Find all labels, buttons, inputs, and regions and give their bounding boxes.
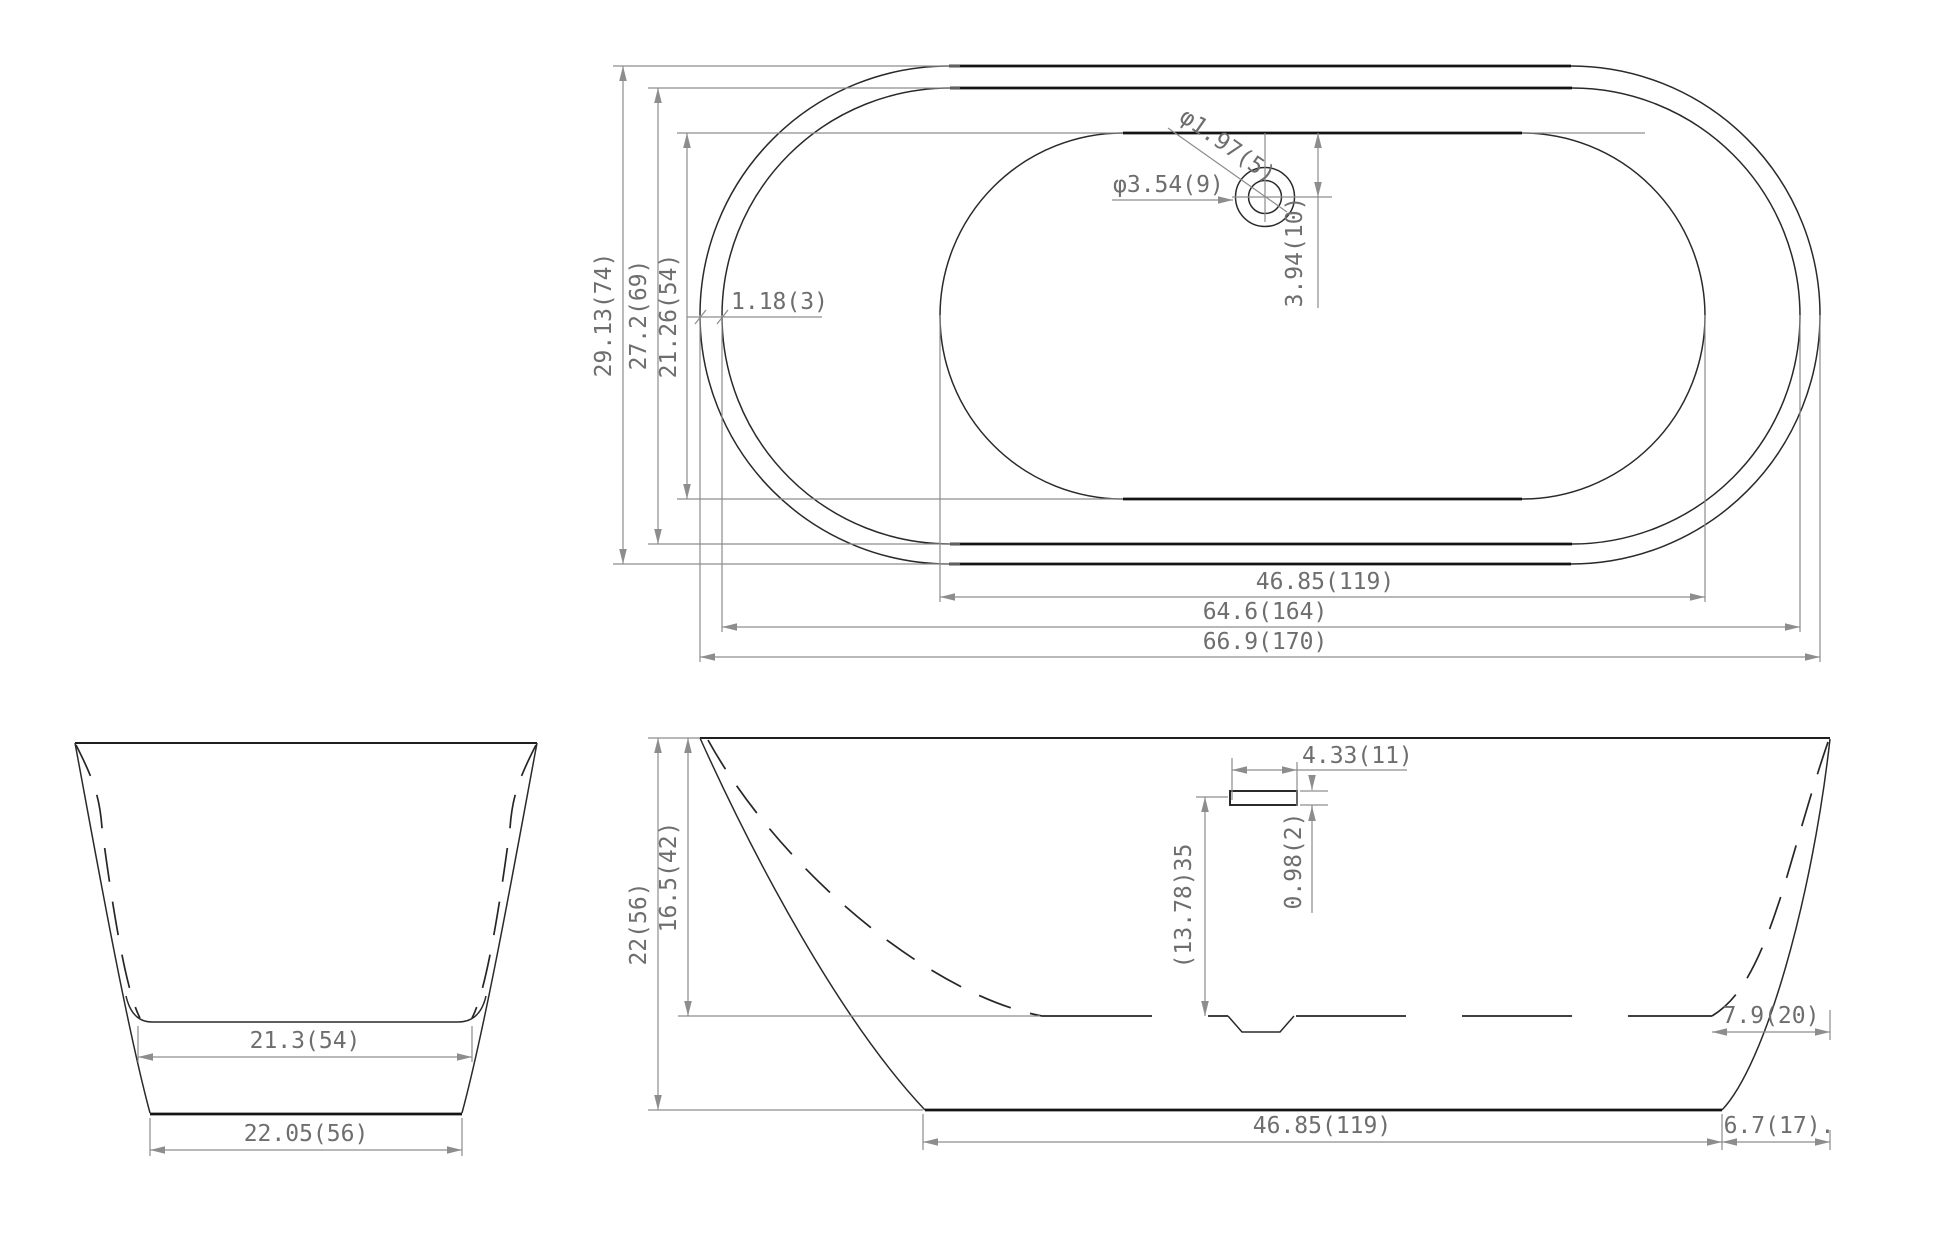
side-view-left-hidden-wall (708, 740, 1042, 1016)
side-view-left-wall (700, 738, 925, 1110)
dim-basin-length: 46.85(119) (1256, 569, 1394, 595)
top-view-bold-edges (949, 66, 1572, 564)
dim-rim-thickness: 1.18(3) (731, 289, 828, 315)
dim-drain-flange-diameter: φ3.54(9) (1113, 172, 1224, 198)
dim-inner-rim-width: 27.2(69) (626, 260, 652, 371)
end-view-right-hidden-wall (472, 745, 536, 1018)
dim-drain-offset: 3.94(10) (1282, 197, 1308, 308)
end-view-floor-edge (126, 996, 486, 1022)
technical-drawing-canvas: 29.13(74) 27.2(69) 21.26(54) 1.18(3) φ1.… (0, 0, 1946, 1249)
side-view-extension-lines (648, 738, 1830, 1150)
dim-overflow-length: 4.33(11) (1302, 743, 1413, 769)
dim-overflow-height: 0.98(2) (1281, 813, 1307, 910)
dim-overall-height: 22(56) (626, 882, 652, 965)
top-view-basin-outline (940, 133, 1705, 499)
dim-overflow-above-floor: (13.78)35 (1171, 844, 1197, 969)
dim-inner-rim-length: 64.6(164) (1203, 599, 1328, 625)
side-view: 22(56) 16.5(42) 4.33(11) 0.98(2) (13.78)… (626, 738, 1834, 1150)
side-view-right-hidden-wall (1712, 742, 1828, 1016)
end-view-right-wall (462, 743, 537, 1113)
dim-overall-length: 66.9(170) (1203, 629, 1328, 655)
dim-floor-width: 21.3(54) (250, 1028, 361, 1054)
side-view-right-wall (1722, 739, 1830, 1110)
end-view: 21.3(54) 22.05(56) (75, 743, 537, 1156)
side-view-drain-recess (1228, 1016, 1294, 1032)
dim-basin-width: 21.26(54) (656, 254, 682, 379)
dim-base-end-offset: 6.7(17). (1724, 1113, 1835, 1139)
dim-base-width: 22.05(56) (244, 1121, 369, 1147)
end-view-left-hidden-wall (76, 745, 140, 1018)
dim-interior-depth: 16.5(42) (656, 822, 682, 933)
top-view-extension-lines (613, 66, 1820, 662)
dim-base-length: 46.85(119) (1253, 1113, 1391, 1139)
top-view: 29.13(74) 27.2(69) 21.26(54) 1.18(3) φ1.… (591, 66, 1820, 662)
top-view-outer-outline (700, 66, 1820, 564)
overflow-slot (1230, 791, 1297, 805)
bathtub-drawing-svg: 29.13(74) 27.2(69) 21.26(54) 1.18(3) φ1.… (0, 0, 1946, 1249)
dim-overall-width: 29.13(74) (591, 253, 617, 378)
dim-floor-end-offset: 7.9(20) (1723, 1003, 1820, 1029)
